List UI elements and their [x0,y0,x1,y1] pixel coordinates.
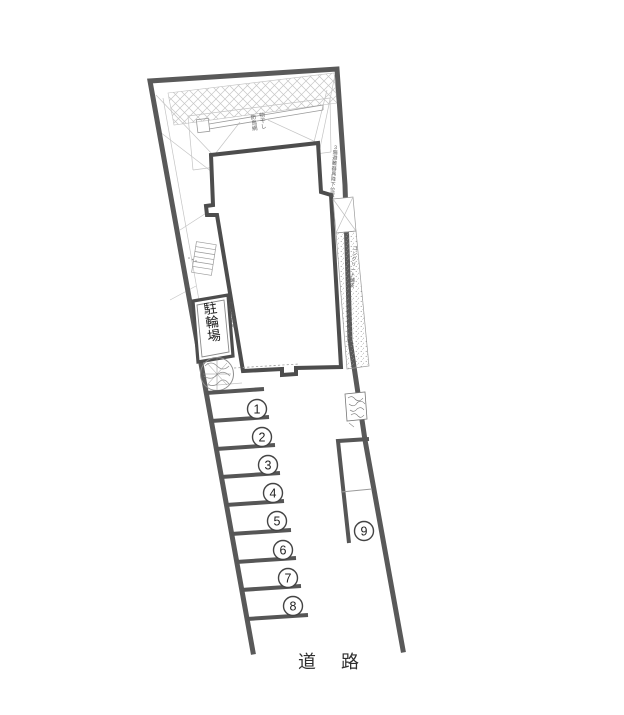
right-upper-note: 3階避難器具降下位置 [329,145,339,199]
tree-symbol [201,358,234,391]
stall-number-7: 7 [279,569,298,588]
stall-number-8: 8 [284,597,303,616]
site-plan-svg: 防鳥網 物干し 6階避難器具降下位置 3階避難器具降下位置 コンクリート舗装 駐… [0,0,624,715]
stall-number-9: 9 [355,522,374,541]
stall-number-3: 3 [259,456,278,475]
svg-text:9: 9 [361,525,368,539]
entry-step-box [333,197,356,233]
svg-text:1: 1 [254,403,261,417]
road-label: 道 路 [298,652,369,672]
svg-text:6: 6 [280,544,287,558]
ellipsis-dots [188,257,197,262]
stall-number-1: 1 [248,400,267,419]
svg-text:3: 3 [265,459,272,473]
stall-number-2: 2 [253,428,272,447]
top-note-2: 物干し [259,111,267,131]
stall-number-5: 5 [268,512,287,531]
svg-text:2: 2 [259,431,266,445]
stall-number-4: 4 [264,484,283,503]
svg-text:7: 7 [285,572,292,586]
svg-text:5: 5 [274,515,281,529]
svg-text:4: 4 [270,487,277,501]
bicycle-parking-box: 駐輪場 [193,295,233,362]
staircase-symbol [192,242,217,276]
svg-text:8: 8 [290,600,297,614]
stall-number-6: 6 [274,541,293,560]
stall-numbers: 1 2 3 4 5 6 7 8 9 [248,400,374,616]
site-plan-page: 防鳥網 物干し 6階避難器具降下位置 3階避難器具降下位置 コンクリート舗装 駐… [0,0,624,715]
